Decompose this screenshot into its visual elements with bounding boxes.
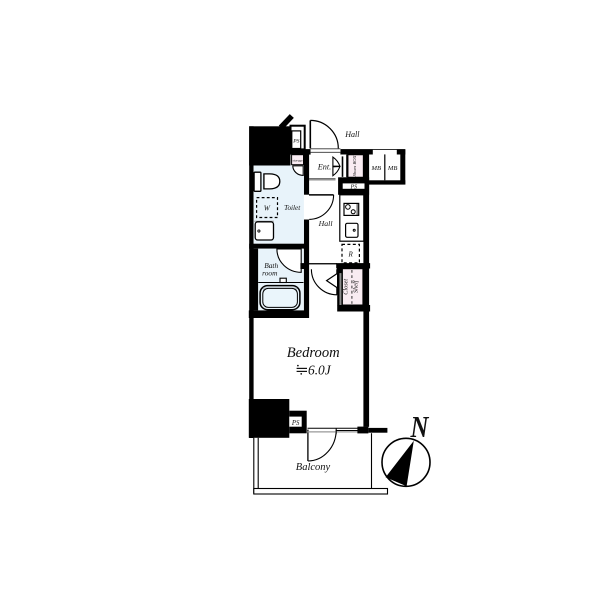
svg-text:PS: PS xyxy=(349,184,357,190)
svg-text:Shelf: Shelf xyxy=(353,279,360,293)
svg-text:N: N xyxy=(410,410,430,444)
svg-text:Shoes BOX: Shoes BOX xyxy=(352,155,357,176)
svg-text:Toilet: Toilet xyxy=(284,204,301,212)
svg-text:R: R xyxy=(348,251,354,259)
svg-text:storage: storage xyxy=(293,158,304,162)
svg-text:W: W xyxy=(264,204,271,213)
svg-text:PS: PS xyxy=(292,138,299,144)
svg-text:Bedroom: Bedroom xyxy=(287,345,340,361)
svg-text:Hall: Hall xyxy=(318,219,333,228)
svg-text:room: room xyxy=(262,268,278,277)
svg-text:MB: MB xyxy=(387,165,398,172)
svg-text:PS: PS xyxy=(291,420,300,427)
svg-text:Ent.: Ent. xyxy=(317,162,331,171)
svg-text:6.0J: 6.0J xyxy=(308,362,332,377)
svg-text:Closet: Closet xyxy=(343,279,350,295)
svg-text:MB: MB xyxy=(371,165,382,172)
svg-text:Balcony: Balcony xyxy=(296,462,331,473)
svg-text:Hall: Hall xyxy=(344,130,360,139)
